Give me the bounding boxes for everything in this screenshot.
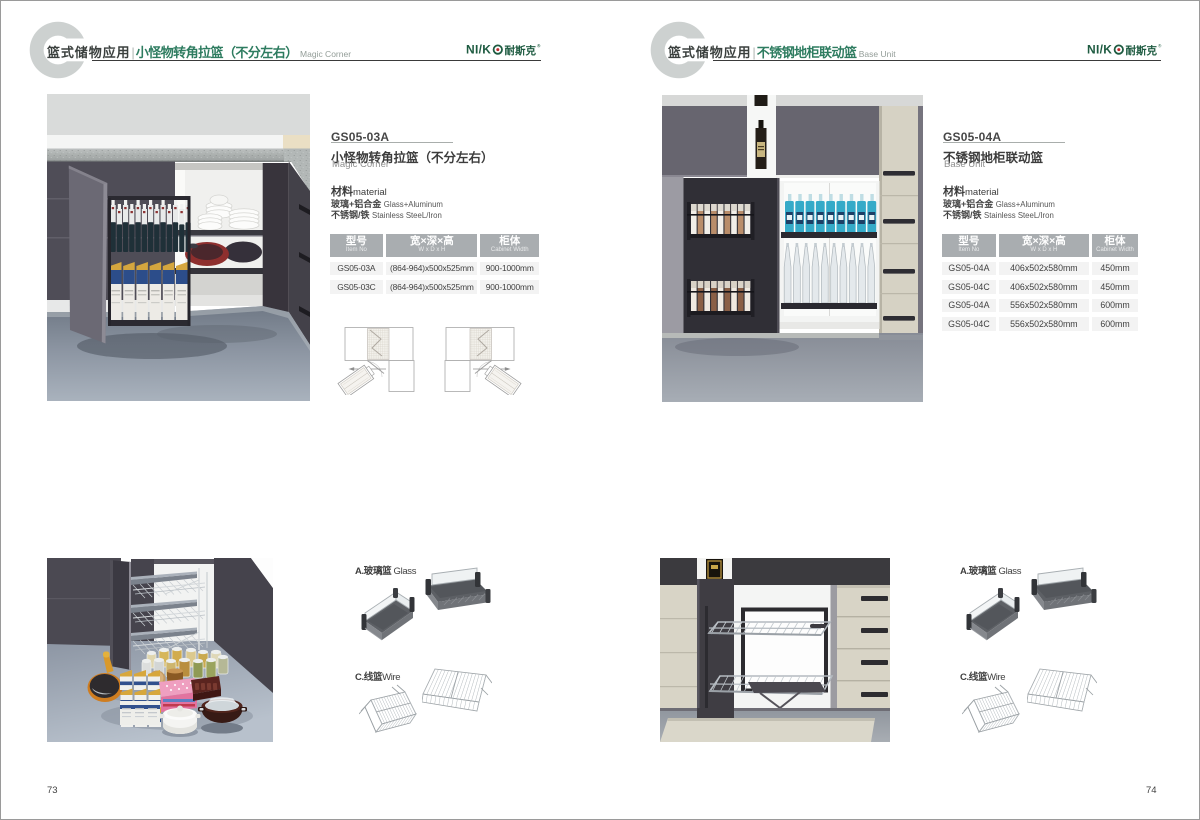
svg-text:耐斯克: 耐斯克	[1126, 44, 1158, 56]
svg-text:NI/K: NI/K	[1087, 43, 1112, 56]
svg-text:NI/K: NI/K	[466, 43, 491, 56]
svg-text:耐斯克: 耐斯克	[505, 44, 537, 56]
svg-text:®: ®	[1158, 43, 1162, 49]
svg-text:®: ®	[537, 43, 541, 49]
